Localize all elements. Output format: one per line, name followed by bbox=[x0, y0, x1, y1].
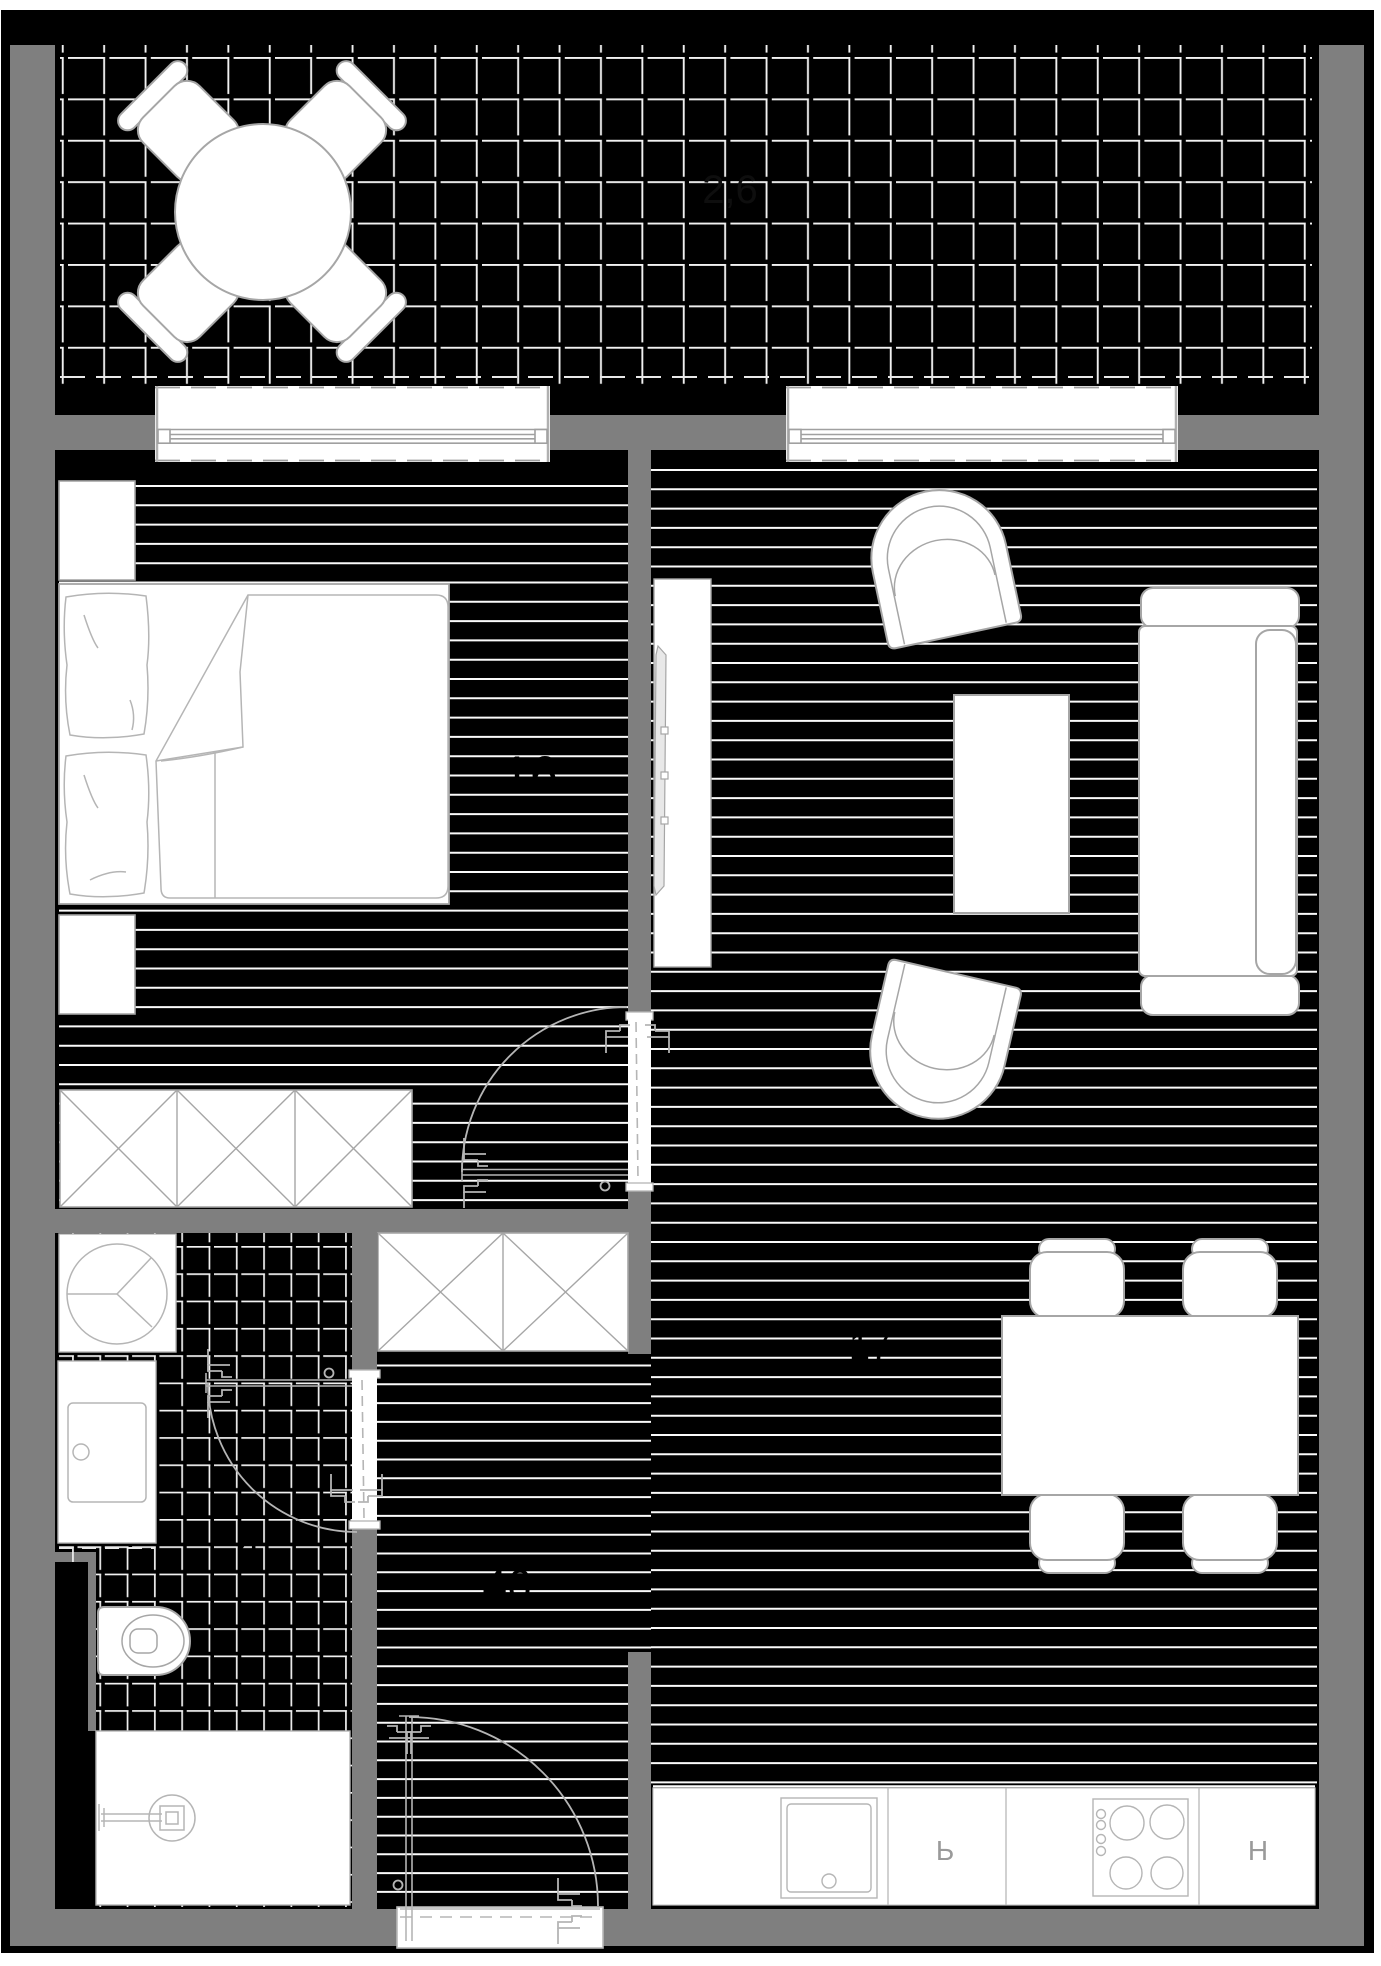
svg-text:Н: Н bbox=[1248, 1835, 1268, 1866]
svg-text:Ь: Ь bbox=[936, 1835, 954, 1866]
svg-text:46: 46 bbox=[483, 1561, 532, 1610]
svg-text:16: 16 bbox=[502, 746, 558, 802]
svg-text:17: 17 bbox=[849, 1326, 891, 1368]
svg-text:2,6: 2,6 bbox=[702, 168, 758, 212]
svg-text:4: 4 bbox=[237, 1521, 260, 1568]
